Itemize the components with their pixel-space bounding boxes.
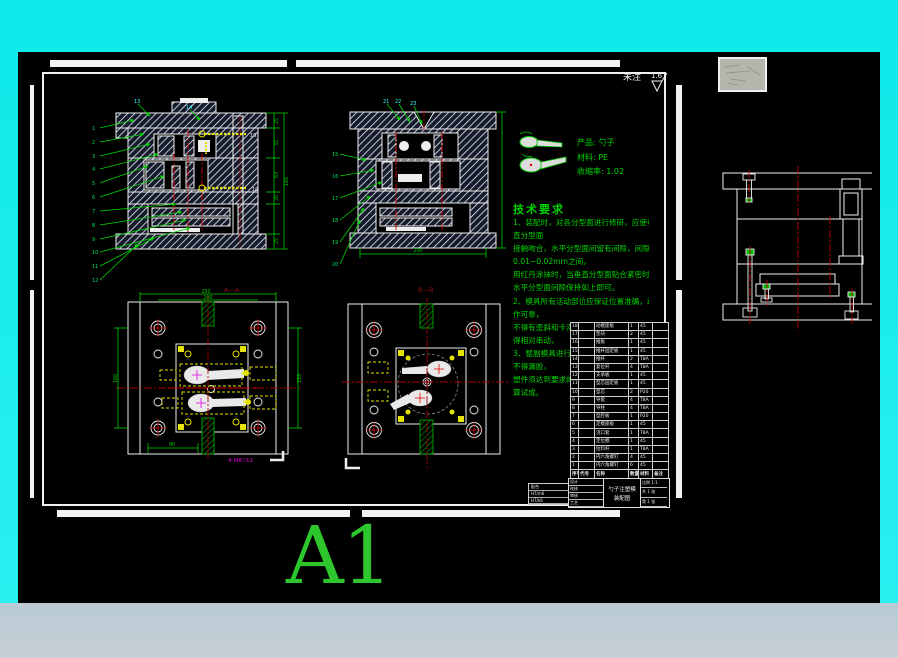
title-block-signatures: 设计 校核 审核 工艺 [569, 479, 604, 507]
surface-note-text: 未注 [623, 70, 641, 83]
svg-text:250: 250 [201, 289, 210, 295]
thumbnail-sketch [720, 59, 765, 90]
section-view-b: 15 16 17 18 19 20 21 22 23 200 B—B [330, 96, 508, 294]
trim-mark-left-1 [30, 85, 34, 280]
bom-row: 7型腔板1P20 [571, 413, 669, 421]
preview-thumbnail [718, 57, 767, 92]
bottom-strip [0, 603, 898, 658]
trim-mark-top-right [296, 60, 620, 67]
tech-requirement-line: 用红丹涂抹时，当垂直分型面贴合紧密时， [513, 268, 649, 281]
fit-table: 配合 H7/m6 H7/k6 [528, 483, 570, 505]
dim-bottom: 200 [413, 248, 422, 254]
insert-screws [398, 350, 464, 422]
svg-text:20: 20 [274, 195, 280, 201]
bom-row: 12支承板145 [571, 372, 669, 380]
svg-text:32: 32 [274, 140, 280, 146]
bom-row: 10型芯2P20 [571, 388, 669, 396]
svg-text:25: 25 [274, 238, 280, 244]
trim-mark-bottom-right [362, 510, 620, 517]
svg-text:3: 3 [92, 154, 95, 160]
bom-row: 14推杆2T8A [571, 355, 669, 363]
sprue-channels [420, 304, 433, 454]
tech-requirement-line: 0.01~0.02mm之间， [513, 255, 649, 268]
tech-requirement-line: 1、装配时，对各分型面进行修研，应使垂 [513, 216, 649, 229]
svg-text:8: 8 [92, 223, 95, 229]
svg-text:17: 17 [332, 196, 338, 202]
bom-row: 1内六角螺钉645 [571, 462, 669, 470]
bom-row: 3拉料杆1T8A [571, 445, 669, 453]
svg-text:14: 14 [186, 105, 192, 111]
bom-row: 9导套4T8A [571, 396, 669, 404]
svg-text:4: 4 [92, 167, 95, 173]
trim-mark-top-left [50, 60, 287, 67]
svg-text:4-M8▽12: 4-M8▽12 [228, 458, 253, 464]
tech-requirement-line: 2、模具所有活动部位应保证位置准确，动 [513, 295, 649, 308]
bom-row: 16推板145 [571, 339, 669, 347]
bill-of-materials-table: 18动模座板14517垫块24516推板14515推杆固定板14514推杆2T8… [570, 322, 669, 480]
tech-requirements-title: 技术要求 [513, 201, 565, 217]
svg-text:1.6: 1.6 [651, 72, 663, 80]
drawing-canvas: 1 2 3 4 5 6 7 8 9 10 11 12 13 14 10 10 2… [18, 52, 880, 603]
svg-text:5: 5 [92, 181, 95, 187]
title-block: 设计 校核 审核 工艺 勺子注塑模 装配图 比例 1:1 共 1 张 第 1 张 [568, 478, 670, 508]
trim-mark-right-2 [676, 290, 682, 498]
svg-text:16: 16 [332, 174, 338, 180]
product-info: 产品: 勺子 材料: PE 收缩率: 1.02 [577, 136, 624, 180]
bom-row: 4定位圈145 [571, 437, 669, 445]
spoon-cavities [184, 366, 251, 412]
fit-table-title: 配合 [529, 484, 569, 491]
svg-text:7: 7 [92, 209, 95, 215]
svg-text:165: 165 [284, 177, 290, 186]
svg-text:1: 1 [92, 126, 95, 132]
svg-text:90: 90 [169, 442, 175, 448]
mold-section-b-plates [350, 112, 496, 248]
svg-text:18: 18 [332, 218, 338, 224]
tech-requirement-line: 作可靠， [513, 308, 649, 321]
svg-text:13: 13 [134, 99, 140, 105]
trim-mark-right-1 [676, 85, 682, 280]
centerlines [749, 166, 852, 331]
drawing-page: 1 2 3 4 5 6 7 8 9 10 11 12 13 14 10 10 2… [0, 0, 898, 658]
bom-row: 17垫块245 [571, 331, 669, 339]
bolts [743, 174, 858, 319]
plan-view-cavity: 250 200 160 155 90 4-M8▽12 [110, 288, 306, 472]
bom-row: 18动模座板145 [571, 323, 669, 331]
svg-text:63: 63 [274, 172, 280, 178]
svg-text:200: 200 [203, 295, 212, 301]
surface-roughness-note: 未注 1.6 [623, 70, 669, 94]
bom-row: 13复位杆4T8A [571, 363, 669, 371]
title-block-name: 勺子注塑模 装配图 [604, 479, 641, 507]
bom-row: 11型芯固定板145 [571, 380, 669, 388]
section-view-a: 1 2 3 4 5 6 7 8 9 10 11 12 13 14 10 10 2… [88, 96, 300, 294]
bom-row: 8导柱4T8A [571, 404, 669, 412]
tech-requirement-line: 水平分型面间隙保持如上即可。 [513, 281, 649, 294]
roughness-icon: 1.6 [645, 70, 669, 94]
dimension-texts: 25 32 63 20 25 165 [274, 118, 290, 244]
fit-table-row: H7/k6 [529, 498, 569, 505]
bom-row: 5浇口套1T8A [571, 429, 669, 437]
svg-text:10: 10 [252, 187, 258, 193]
corner-mark [346, 458, 360, 468]
tech-requirement-line: 接触吻合，水平分型面间留有间隙，间隙在 [513, 242, 649, 255]
svg-text:21: 21 [383, 99, 389, 105]
svg-text:160: 160 [113, 374, 119, 383]
slide-outlines [368, 362, 388, 401]
svg-text:9: 9 [92, 237, 95, 243]
svg-text:6: 6 [92, 195, 95, 201]
svg-text:11: 11 [92, 264, 98, 270]
mold-section-a-plates [116, 98, 266, 249]
svg-text:22: 22 [395, 99, 401, 105]
svg-text:155: 155 [297, 374, 303, 383]
svg-text:15: 15 [332, 152, 338, 158]
svg-text:19: 19 [332, 240, 338, 246]
svg-text:23: 23 [410, 101, 416, 107]
svg-text:25: 25 [274, 118, 280, 124]
svg-text:10: 10 [92, 250, 98, 256]
svg-text:20: 20 [332, 262, 338, 268]
spoon-cores [390, 361, 451, 410]
side-view-assembly [710, 156, 872, 340]
plan-view-core [338, 292, 514, 474]
bom-row: 2内六角螺钉445 [571, 454, 669, 462]
product-spoon-icon [516, 128, 574, 180]
tech-requirement-line: 直分型面 [513, 229, 649, 242]
trim-mark-left-2 [30, 290, 34, 498]
sheet-format-label: A1 [286, 514, 391, 598]
svg-text:2: 2 [92, 140, 95, 146]
title-block-meta: 比例 1:1 共 1 张 第 1 张 [641, 479, 667, 507]
svg-text:10: 10 [250, 133, 256, 139]
bom-row: 15推杆固定板145 [571, 347, 669, 355]
bom-row: 6定模座板145 [571, 421, 669, 429]
svg-text:12: 12 [92, 278, 98, 284]
